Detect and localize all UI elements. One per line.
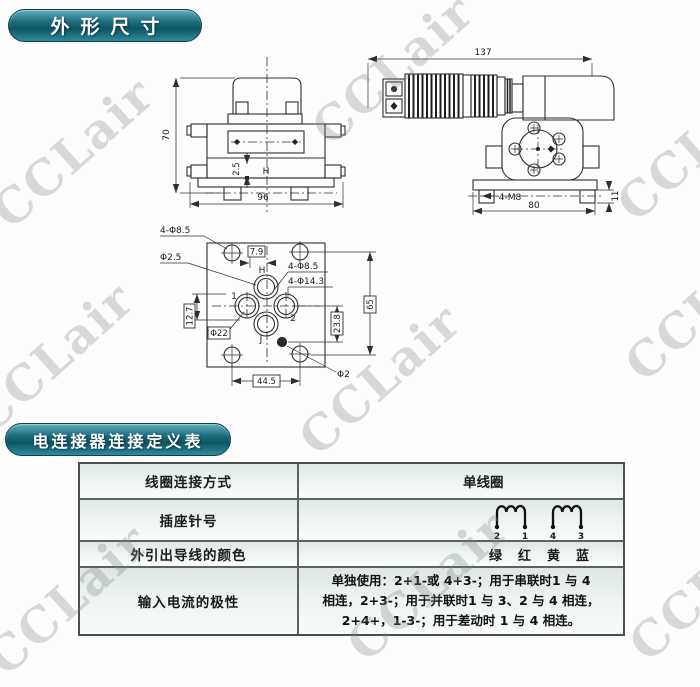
pin-number: 4 — [550, 532, 556, 541]
pin-number: 3 — [578, 532, 584, 541]
row-value: 单独使用：2+1-或 4+3-；用于串联时1 与 4 相连，2+3-；用于并联时… — [299, 568, 623, 634]
engineering-drawings: H 2.5 70 96 137 — [0, 0, 700, 430]
datasheet-page: { "watermark": {"text": "CCLair"}, "head… — [0, 0, 700, 635]
label-spigot: Φ22 — [210, 329, 228, 339]
port-j-label: J — [259, 335, 263, 345]
table-row-wire-colors: 外引出导线的颜色 绿 红 黄 蓝 — [80, 540, 623, 566]
pin-number: 2 — [494, 532, 500, 541]
side-thread-label: 4-M8 — [499, 193, 522, 203]
row-label: 外引出导线的颜色 — [80, 542, 299, 566]
dim-height: 65 — [366, 299, 376, 310]
table-row-polarity: 输入电流的极性 单独使用：2+1-或 4+3-；用于串联时1 与 4 相连，2+… — [80, 566, 623, 634]
wire-color: 蓝 — [568, 545, 597, 564]
connector-definition-table: 线圈连接方式 单线圈 插座针号 2 1 4 3 外引出导线的颜色 — [78, 462, 625, 636]
side-dim-foot: 11 — [611, 191, 621, 202]
dim-width: 44.5 — [257, 377, 276, 387]
dim-offset-79: 7.9 — [250, 248, 264, 258]
label-pin-hole: Φ2 — [337, 370, 350, 380]
wire-color-list: 绿 红 黄 蓝 — [481, 545, 597, 564]
table-row-pin-numbers: 插座针号 2 1 4 3 — [80, 498, 623, 540]
front-view: H 2.5 70 96 — [162, 57, 345, 212]
watermark: CCLair — [619, 499, 700, 672]
label-holes-c: 4-Φ14.3 — [288, 277, 324, 287]
bottom-view: H 1 2 J 4-Φ8.5 Φ2.5 7.9 4-Φ8.5 4-Φ14.3 Φ… — [160, 226, 376, 387]
row-label: 线圈连接方式 — [80, 464, 299, 498]
label-corner-holes: 4-Φ8.5 — [160, 226, 190, 236]
side-view: 137 4-M8 — [368, 48, 621, 215]
port-h-label: H — [259, 266, 266, 276]
row-value: 2 1 4 3 — [299, 500, 623, 540]
side-dim-width: 80 — [528, 201, 540, 211]
row-value: 绿 红 黄 蓝 — [299, 542, 623, 566]
section-header-connector-table: 电连接器连接定义表 — [5, 423, 231, 456]
wire-color: 红 — [510, 545, 539, 564]
pin-number: 1 — [522, 532, 528, 541]
dim-left: 12.7 — [186, 307, 196, 326]
port-2-label: 2 — [290, 314, 296, 324]
coil-symbol-icon — [553, 506, 581, 526]
front-dim-height: 70 — [162, 129, 172, 141]
row-value: 单线圈 — [299, 464, 623, 498]
row-label: 插座针号 — [80, 500, 299, 540]
front-dim-offset: 2.5 — [232, 162, 242, 176]
label-small-hole: Φ2.5 — [160, 253, 181, 263]
wire-color: 绿 — [481, 545, 510, 564]
table-row-coil-connection: 线圈连接方式 单线圈 — [80, 464, 623, 498]
wire-color: 黄 — [539, 545, 568, 564]
dim-right: 23.8 — [333, 314, 343, 333]
front-port-label: H — [263, 167, 270, 177]
row-label: 输入电流的极性 — [80, 568, 299, 634]
coil-pin-diagram: 2 1 4 3 — [485, 501, 597, 541]
polarity-text: 单独使用：2+1-或 4+3-；用于串联时1 与 4 相连，2+3-；用于并联时… — [299, 571, 623, 631]
port-1-label: 1 — [231, 292, 237, 302]
label-holes-b: 4-Φ8.5 — [288, 262, 318, 272]
section-header-dimensions: 外形尺寸 — [8, 9, 202, 42]
coil-symbol-icon — [497, 506, 525, 526]
front-dim-width: 96 — [257, 193, 269, 203]
side-dim-length: 137 — [474, 48, 491, 58]
